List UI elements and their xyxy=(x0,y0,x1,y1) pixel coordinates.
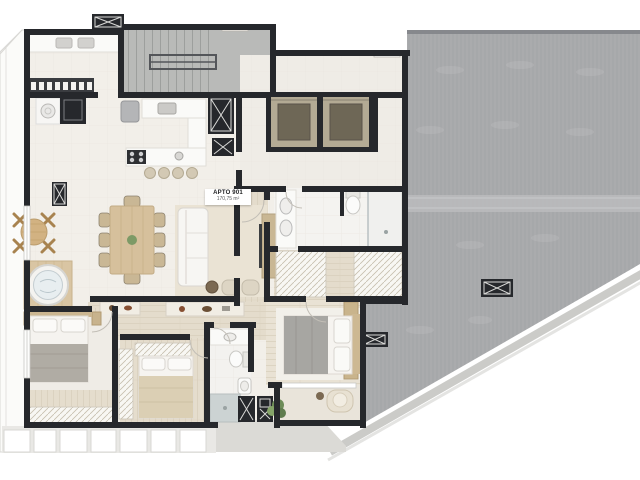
roof-top-edge xyxy=(407,30,640,34)
pillow-icon xyxy=(334,319,350,343)
sink-icon xyxy=(56,38,72,48)
coffee-table-icon xyxy=(206,281,218,293)
bottom-balcony xyxy=(2,426,216,453)
master-bed xyxy=(24,311,116,390)
basin-icon xyxy=(224,333,236,341)
duct-shaft-icon xyxy=(92,14,124,30)
shower-icon xyxy=(210,394,240,422)
island-sink-icon xyxy=(175,152,183,160)
service-counter xyxy=(28,34,120,52)
elevators xyxy=(266,92,378,152)
wardrobe xyxy=(119,349,133,419)
sideboard xyxy=(166,302,244,316)
hot-tub xyxy=(24,261,72,309)
unit-area: 170,75 m² xyxy=(205,197,251,203)
blanket xyxy=(139,376,193,418)
roof-vent-icon xyxy=(481,279,513,297)
duct-shaft-icon xyxy=(60,96,86,124)
fridge-icon xyxy=(121,101,139,122)
terrace-window xyxy=(282,383,356,388)
nightstand-icon xyxy=(92,312,101,325)
roof-seam-band xyxy=(407,195,640,212)
pillow-icon xyxy=(142,358,165,370)
tv-icon xyxy=(259,224,262,268)
elevator-1 xyxy=(271,97,317,147)
basin-icon xyxy=(280,198,292,214)
pillow-icon xyxy=(334,347,350,371)
basin-icon xyxy=(280,220,292,236)
pillow-icon xyxy=(61,319,85,332)
table-plant-icon xyxy=(127,235,137,245)
toilet-icon xyxy=(230,351,251,367)
blanket xyxy=(284,316,328,374)
blanket xyxy=(30,344,88,382)
pillow-icon xyxy=(168,358,191,370)
sink-icon xyxy=(158,103,176,114)
duct-shaft-icon xyxy=(238,396,255,422)
wardrobe xyxy=(28,407,116,423)
duct-shaft-icon xyxy=(208,96,234,134)
floor-plan-image: APTO 901 170,75 m² xyxy=(0,0,640,480)
second-bed xyxy=(135,343,193,418)
washing-machine-icon xyxy=(36,98,60,124)
side-table-icon xyxy=(316,392,324,400)
duct-shaft-icon xyxy=(212,138,234,156)
cooktop-icon xyxy=(127,150,146,164)
sideboard xyxy=(100,302,140,315)
sink-icon xyxy=(78,38,94,48)
sofa xyxy=(178,208,208,286)
duct-shaft-icon xyxy=(52,182,67,206)
cabinet-row xyxy=(28,78,94,94)
pillow-icon xyxy=(33,319,57,332)
toilet-icon xyxy=(346,191,360,214)
sink-icon xyxy=(238,378,251,394)
unit-label: APTO 901 170,75 m² xyxy=(205,189,251,205)
shower-icon xyxy=(368,190,402,248)
elevator-2 xyxy=(323,97,369,147)
floor-plan-canvas xyxy=(0,0,640,480)
